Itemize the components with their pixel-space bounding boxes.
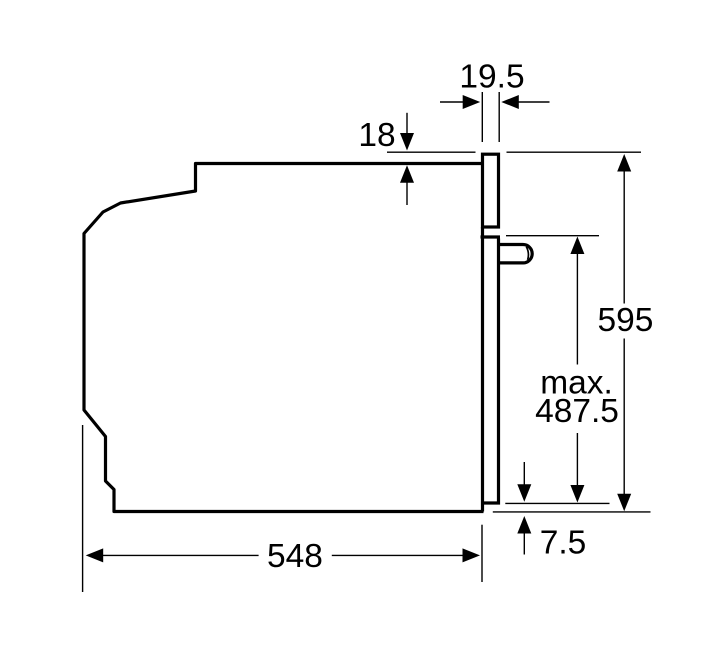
svg-text:487.5: 487.5 [535, 393, 619, 430]
svg-text:548: 548 [267, 538, 323, 575]
svg-text:19.5: 19.5 [459, 59, 524, 96]
svg-text:595: 595 [598, 302, 654, 339]
svg-text:18: 18 [358, 117, 395, 154]
svg-text:7.5: 7.5 [540, 525, 587, 562]
